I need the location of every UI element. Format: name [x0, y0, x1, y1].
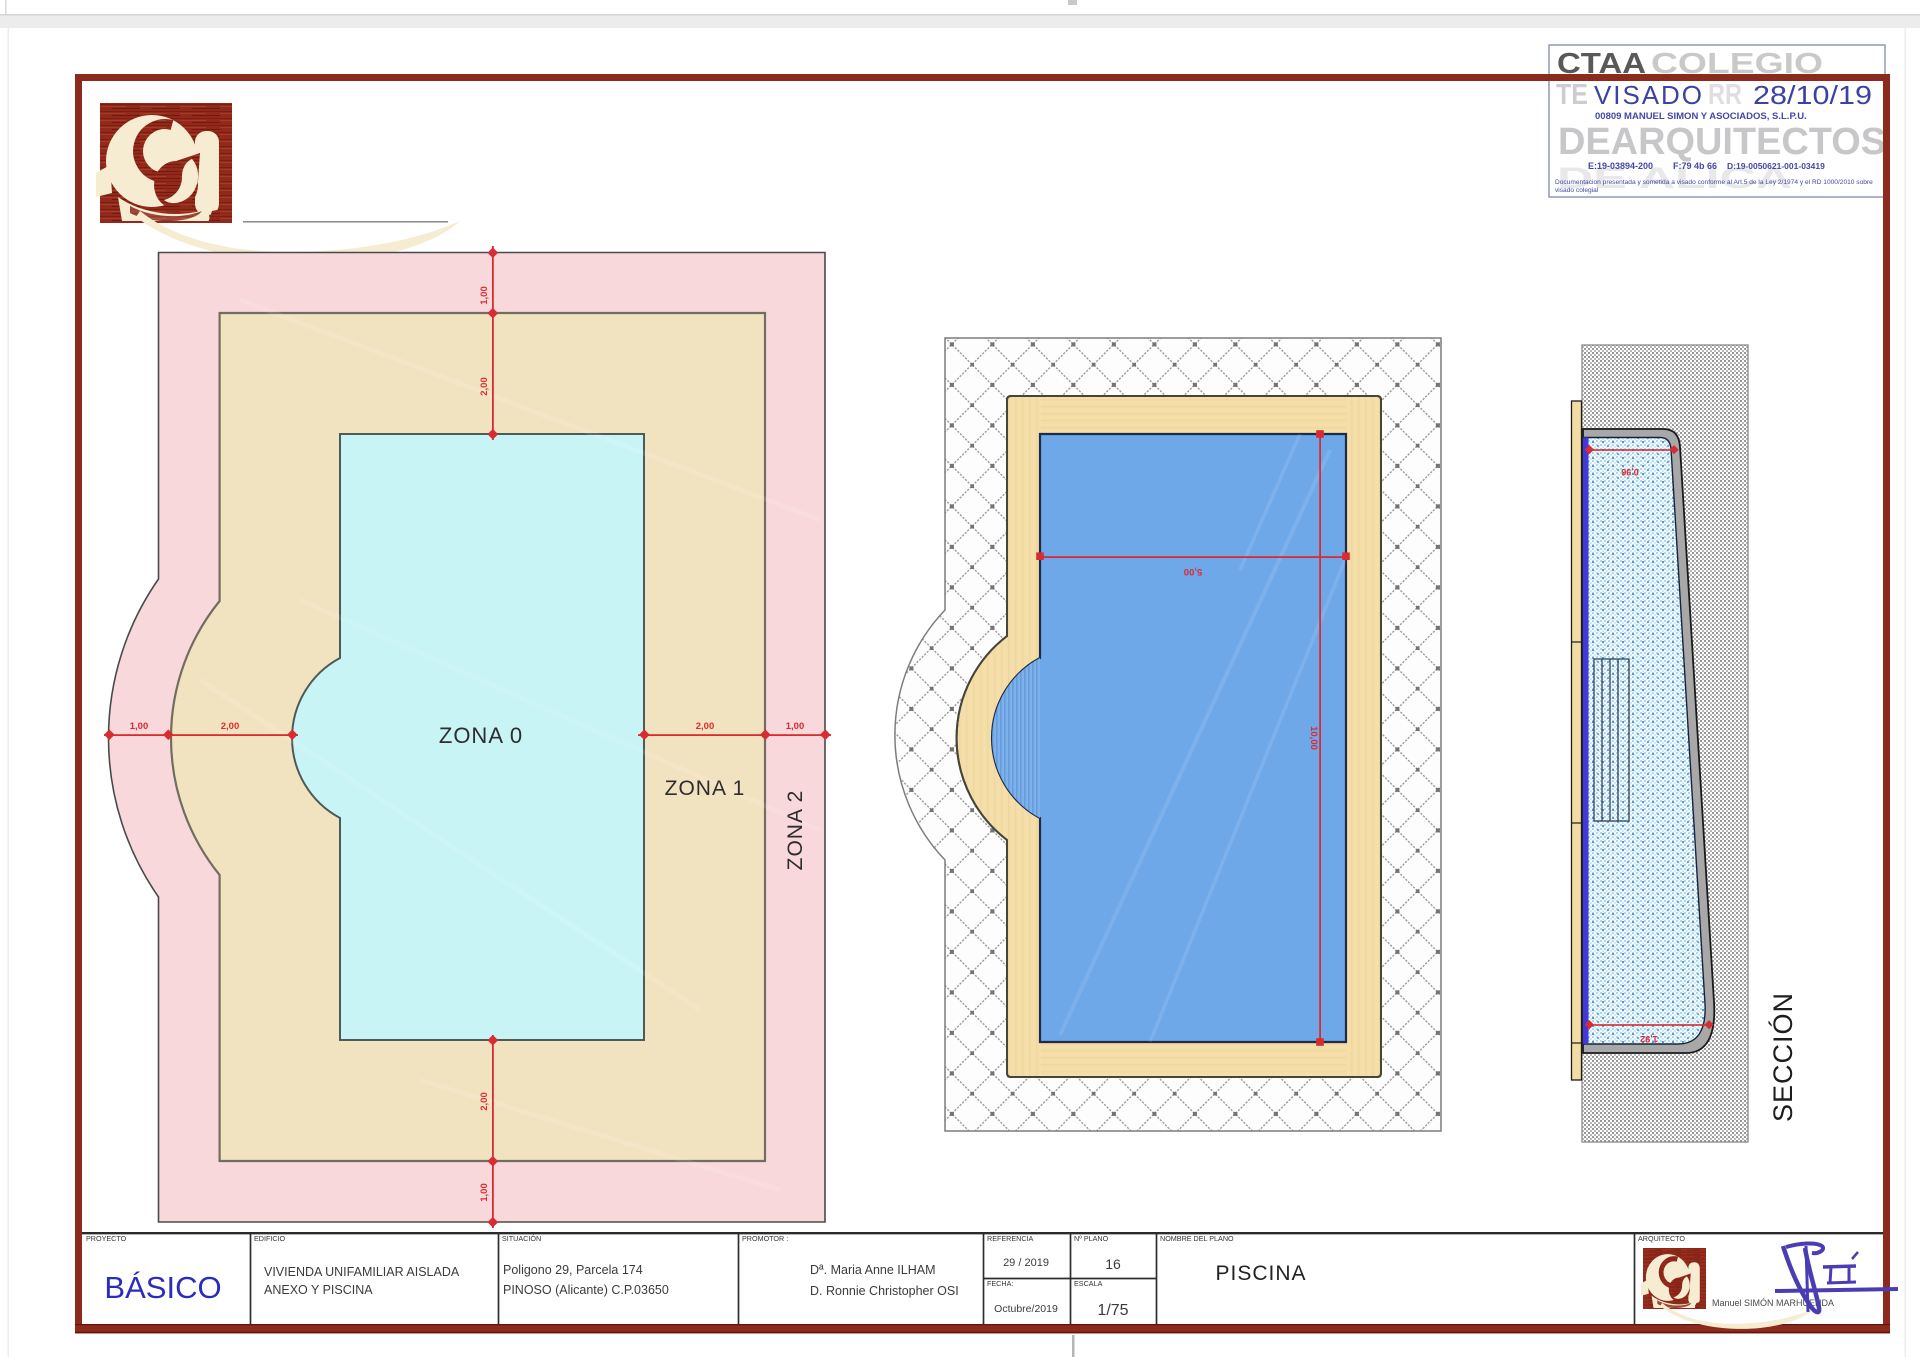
- svg-text:ESCALA: ESCALA: [1074, 1279, 1103, 1288]
- svg-text:visado colegial: visado colegial: [1555, 187, 1599, 194]
- svg-text:ANEXO Y PISCINA: ANEXO Y PISCINA: [264, 1283, 373, 1297]
- svg-text:16: 16: [1105, 1256, 1121, 1272]
- svg-text:2,00: 2,00: [221, 721, 240, 732]
- svg-text:VISADO: VISADO: [1594, 80, 1702, 110]
- svg-text:1/75: 1/75: [1097, 1302, 1128, 1319]
- svg-text:PISCINA: PISCINA: [1215, 1262, 1306, 1285]
- svg-text:D. Ronnie Christopher OSI: D. Ronnie Christopher OSI: [810, 1284, 959, 1298]
- svg-text:ZONA 1: ZONA 1: [665, 777, 746, 800]
- svg-text:PINOSO (Alicante) C.P.03650: PINOSO (Alicante) C.P.03650: [503, 1283, 669, 1297]
- svg-text:E:19-03894-200: E:19-03894-200: [1588, 161, 1653, 171]
- svg-text:Nº PLANO: Nº PLANO: [1074, 1234, 1109, 1243]
- svg-text:DEARQUITECTOS: DEARQUITECTOS: [1558, 121, 1886, 163]
- svg-text:F:79 4b 66: F:79 4b 66: [1673, 161, 1717, 171]
- svg-text:5,00: 5,00: [1184, 566, 1203, 577]
- svg-text:1,92: 1,92: [1640, 1034, 1658, 1044]
- svg-text:RR: RR: [1708, 79, 1742, 111]
- svg-text:TE: TE: [1556, 79, 1588, 111]
- svg-text:ARQUITECTO: ARQUITECTO: [1638, 1234, 1685, 1243]
- svg-text:00809 MANUEL SIMON Y ASOCIADOS: 00809 MANUEL SIMON Y ASOCIADOS, S.L.P.U.: [1595, 111, 1807, 122]
- svg-text:1,00: 1,00: [130, 721, 149, 732]
- svg-text:28/10/19: 28/10/19: [1753, 80, 1872, 110]
- svg-text:Documentacion presentada y som: Documentacion presentada y sometida a vi…: [1555, 179, 1873, 186]
- svg-text:1,00: 1,00: [479, 286, 490, 305]
- svg-text:SITUACIÓN: SITUACIÓN: [502, 1234, 541, 1243]
- svg-text:Poligono 29, Parcela 174: Poligono 29, Parcela 174: [503, 1263, 643, 1277]
- svg-text:2,00: 2,00: [696, 721, 715, 732]
- svg-text:ZONA 2: ZONA 2: [784, 790, 807, 871]
- svg-text:D:19-0050621-001-03419: D:19-0050621-001-03419: [1727, 161, 1825, 171]
- svg-text:Dª. Maria Anne ILHAM: Dª. Maria Anne ILHAM: [810, 1263, 936, 1277]
- svg-text:SECCIÓN: SECCIÓN: [1767, 992, 1798, 1122]
- svg-text:FECHA:: FECHA:: [987, 1279, 1013, 1288]
- svg-text:EDIFICIO: EDIFICIO: [254, 1234, 286, 1243]
- svg-text:VIVIENDA UNIFAMILIAR AISLADA: VIVIENDA UNIFAMILIAR AISLADA: [264, 1265, 460, 1279]
- svg-text:1,00: 1,00: [786, 721, 805, 732]
- svg-text:ZONA 0: ZONA 0: [439, 723, 523, 748]
- svg-text:NOMBRE DEL PLANO: NOMBRE DEL PLANO: [1160, 1234, 1234, 1243]
- svg-text:29 / 2019: 29 / 2019: [1003, 1257, 1049, 1269]
- svg-text:Octubre/2019: Octubre/2019: [994, 1303, 1058, 1315]
- svg-text:BÁSICO: BÁSICO: [104, 1270, 221, 1305]
- svg-text:2,00: 2,00: [479, 1092, 490, 1111]
- svg-text:0,96: 0,96: [1621, 467, 1639, 477]
- svg-text:PROMOTOR :: PROMOTOR :: [742, 1234, 788, 1243]
- svg-text:REFERENCIA: REFERENCIA: [987, 1234, 1034, 1243]
- svg-text:PROYECTO: PROYECTO: [86, 1234, 127, 1243]
- svg-text:10,00: 10,00: [1308, 726, 1319, 750]
- svg-text:2,00: 2,00: [479, 377, 490, 396]
- svg-text:1,00: 1,00: [479, 1183, 490, 1202]
